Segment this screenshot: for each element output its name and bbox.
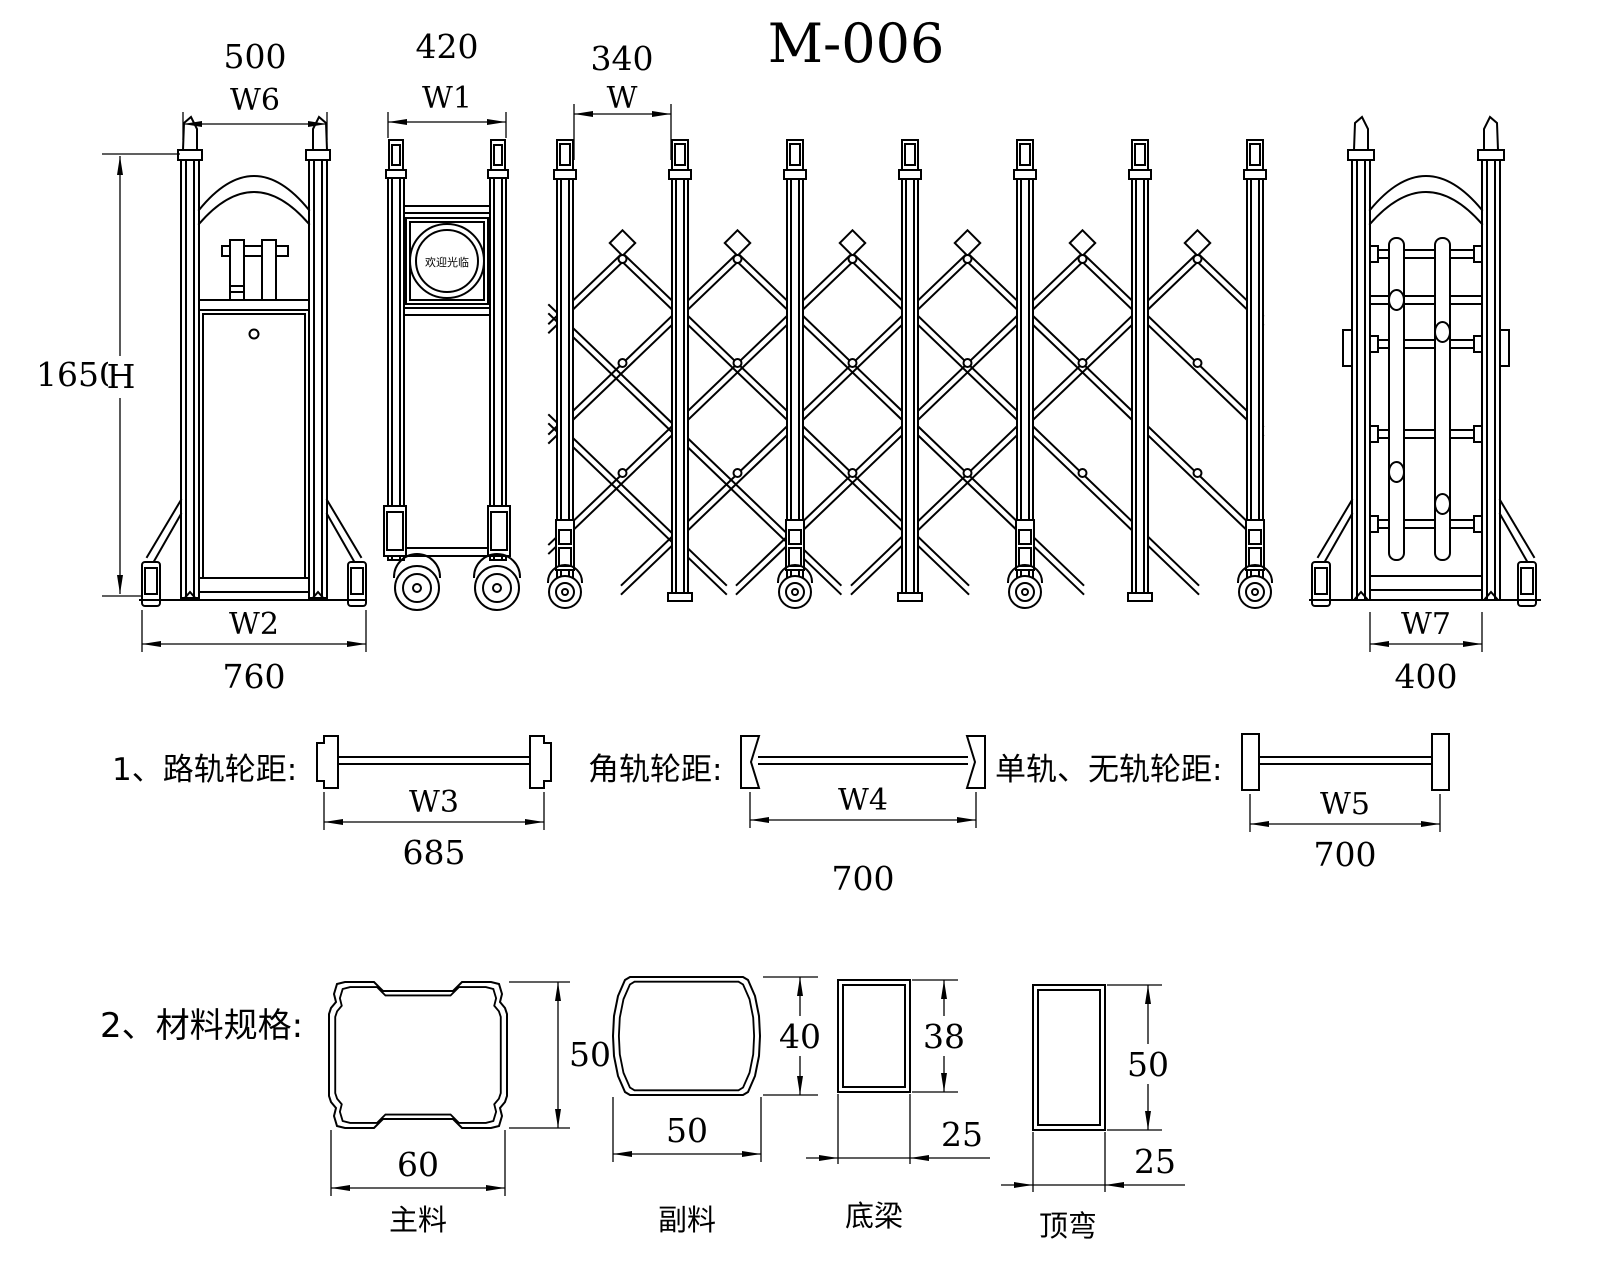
dim-value: 700 [832, 859, 895, 898]
flat-wheel [1242, 734, 1259, 790]
right-post [1482, 160, 1500, 600]
track-label: 单轨、无轨轮距: [995, 752, 1222, 788]
technical-drawing-page: M-006 [0, 0, 1600, 1280]
lattice-slat [668, 140, 692, 601]
dim-label: W7 [1401, 607, 1451, 642]
dim-height: 1650 H [36, 154, 180, 596]
profile-name: 顶弯 [1039, 1209, 1097, 1243]
dim-value: 420 [416, 27, 479, 66]
rail-wheel [317, 736, 338, 788]
dim-height: 40 [779, 1017, 821, 1056]
panel [203, 314, 305, 578]
profile-name: 副料 [658, 1203, 716, 1237]
outrigger-leg [327, 500, 361, 557]
right-post [490, 178, 506, 560]
wheel [395, 566, 439, 610]
right-end-frame-view [1310, 117, 1540, 606]
keyhole [250, 330, 259, 339]
v-groove-wheel [967, 736, 985, 788]
finial [1484, 117, 1498, 150]
latch [1500, 330, 1509, 366]
dim-height: 38 [923, 1017, 965, 1056]
left-end-frame-view [140, 117, 366, 606]
apex-tab [955, 230, 980, 255]
dim-width: 25 [941, 1115, 983, 1154]
dim-w2: W2 760 [142, 607, 366, 696]
caster-wheel [1009, 576, 1041, 608]
dim-value: 500 [224, 37, 287, 76]
dim-label: W2 [229, 607, 279, 642]
dim-value: 340 [591, 39, 654, 78]
dim-label: W4 [838, 783, 888, 818]
caster-wheel [1239, 576, 1271, 608]
profile-bottom-beam: 38 25 底梁 [806, 980, 990, 1233]
v-groove-wheel [741, 736, 759, 788]
lattice-slat [548, 140, 582, 608]
accordion-lattice [548, 140, 1272, 608]
latch [1343, 330, 1352, 366]
wheel [475, 566, 519, 610]
apex-tab [1070, 230, 1095, 255]
caster-wheel [779, 576, 811, 608]
materials-section: 2、材料规格: 50 60 主料 40 50 [100, 977, 1185, 1243]
dim-width: 50 [666, 1111, 708, 1150]
apex-tab [610, 230, 635, 255]
dim-value: 685 [403, 833, 466, 872]
lattice-slat [1238, 140, 1272, 608]
dim-w1: 420 W1 [388, 27, 506, 138]
folded-slat [1389, 238, 1404, 560]
rail-wheel [530, 736, 551, 788]
finial [183, 117, 197, 150]
dim-bay-w: 340 W [574, 39, 671, 160]
profile-name: 主料 [389, 1203, 447, 1237]
welcome-sign-text: 欢迎光临 [425, 255, 469, 269]
track-gauge-trackless: 单轨、无轨轮距: W5 700 [995, 734, 1449, 874]
apex-tab [725, 230, 750, 255]
dim-label: W1 [422, 81, 472, 116]
lattice-slat [1008, 140, 1042, 608]
dim-label: H [107, 357, 136, 396]
model-number: M-006 [768, 12, 945, 75]
profile-main: 50 60 主料 [329, 982, 611, 1237]
dim-value: 400 [1395, 657, 1458, 696]
dim-label: W3 [409, 785, 459, 820]
dim-height: 50 [1127, 1045, 1169, 1084]
track-label: 1、路轨轮距: [112, 752, 297, 788]
right-post [309, 160, 327, 598]
caster-wheel [549, 576, 581, 608]
outrigger-leg [1318, 500, 1352, 557]
dim-width: 60 [397, 1145, 439, 1184]
dim-height: 50 [569, 1035, 611, 1074]
dim-label: W6 [230, 83, 280, 118]
dim-label: W [607, 81, 638, 116]
left-post [181, 160, 199, 598]
profile-name: 底梁 [845, 1199, 903, 1233]
dim-label: W5 [1320, 787, 1370, 822]
apex-tab [1185, 230, 1210, 255]
dim-value: 760 [223, 657, 286, 696]
track-label: 角轨轮距: [588, 752, 722, 788]
folded-lattice-ladder [1370, 238, 1482, 560]
profile-secondary: 40 50 副料 [613, 977, 822, 1237]
dim-w6: 500 W6 [183, 37, 327, 140]
left-post [1352, 160, 1370, 600]
outrigger-leg [1500, 500, 1534, 557]
finial [1354, 117, 1368, 150]
profile-top-bend: 50 25 顶弯 [1001, 985, 1185, 1243]
left-post [388, 178, 404, 560]
flat-wheel [1432, 734, 1449, 790]
lattice-slat [1128, 140, 1152, 601]
track-gauge-rail: 1、路轨轮距: W3 685 [112, 736, 551, 872]
lattice-slat [898, 140, 922, 601]
gate-drawing-svg: M-006 [0, 0, 1600, 1280]
outrigger-leg [147, 500, 181, 557]
dim-value: 700 [1314, 835, 1377, 874]
track-gauge-angle: 角轨轮距: W4 700 [588, 736, 985, 898]
dim-w7: W7 400 [1370, 607, 1482, 696]
drawing-title: M-006 [768, 12, 945, 75]
apex-tab [840, 230, 865, 255]
dim-width: 25 [1134, 1142, 1176, 1181]
motor-carriage-view: 欢迎光临 [384, 140, 520, 610]
finial [313, 117, 327, 150]
materials-heading: 2、材料规格: [100, 1006, 303, 1046]
lattice-slats [548, 140, 1272, 608]
